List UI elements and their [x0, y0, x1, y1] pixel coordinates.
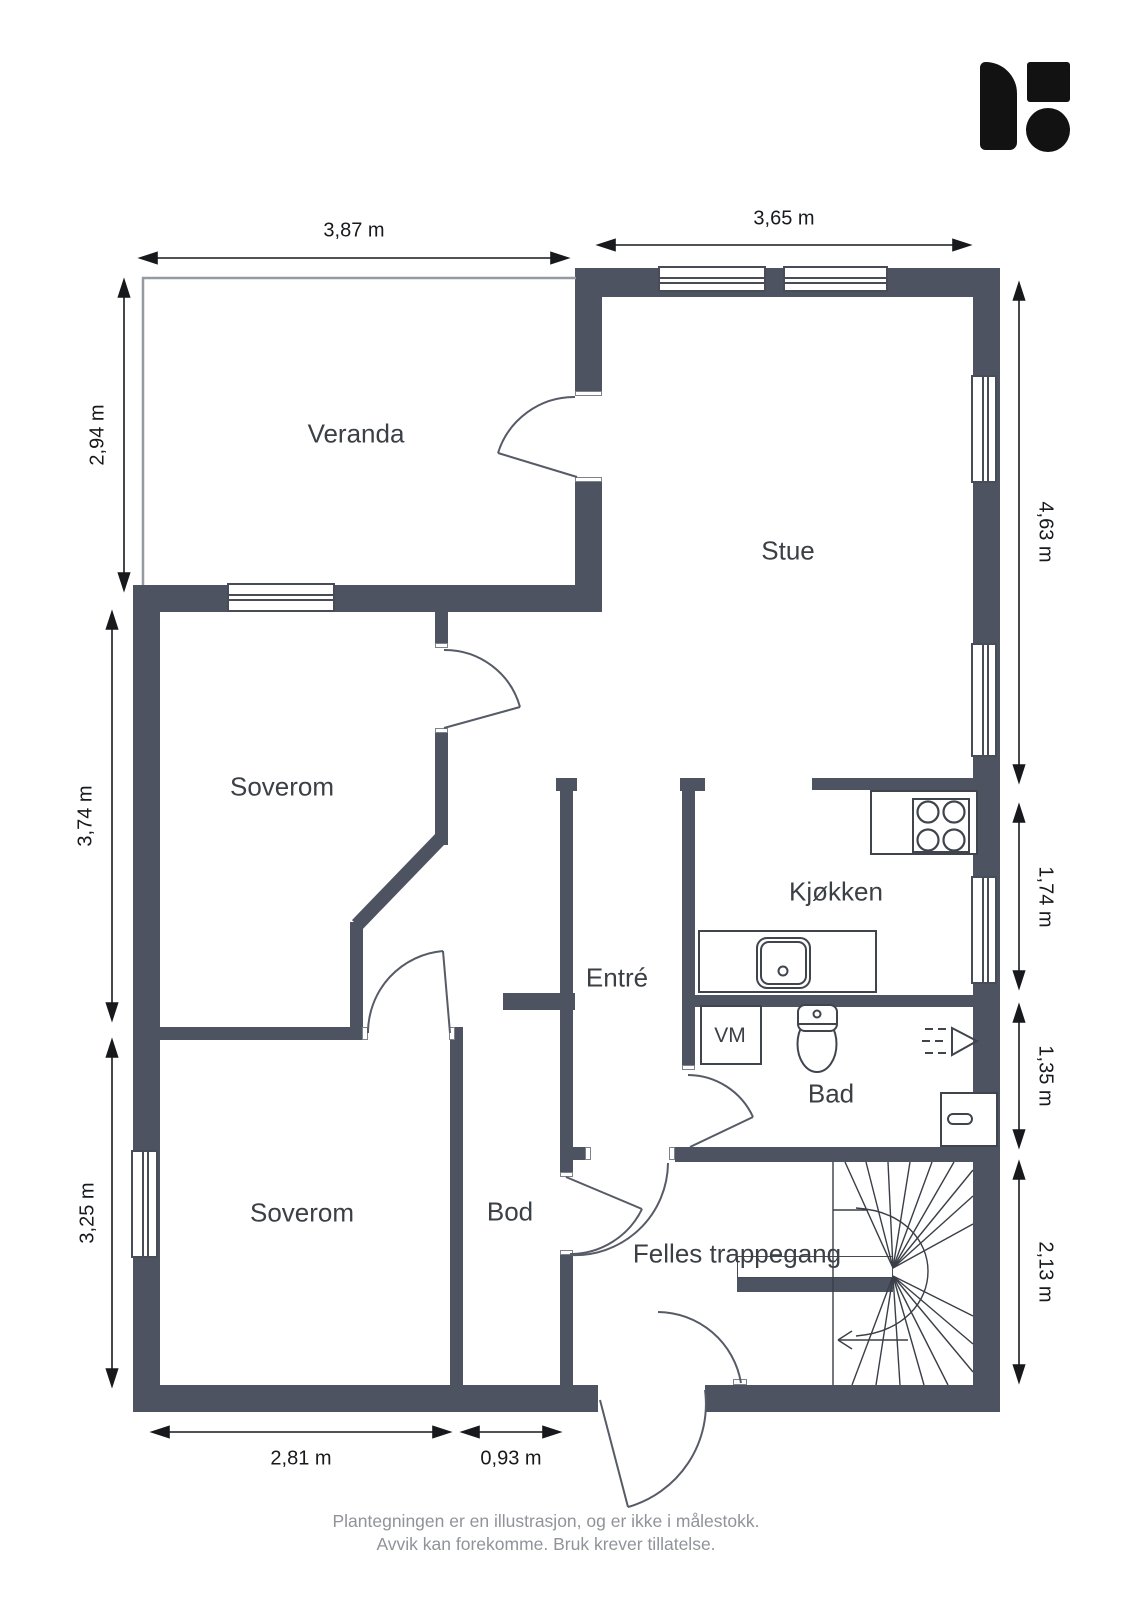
- wall-stue-left-lower: [575, 478, 602, 612]
- wall-entre-right: [682, 778, 695, 1070]
- door-leaf-entre: [690, 1117, 753, 1147]
- shower-icon: [922, 1028, 977, 1055]
- dim-bod-width: 0,93 m: [480, 1448, 541, 1471]
- jamb: [733, 1379, 747, 1385]
- door-arc-entre: [688, 1075, 753, 1117]
- window-soverom1-top: [227, 583, 335, 612]
- wall-exterior-bottom-right: [705, 1385, 1000, 1412]
- jamb: [435, 728, 448, 733]
- jamb: [449, 1027, 455, 1040]
- dim-soverom-upper-height: 3,74 m: [75, 785, 98, 846]
- jamb: [435, 643, 448, 648]
- wall-stue-left-upper: [575, 268, 602, 395]
- room-label-entre: Entré: [586, 963, 648, 994]
- wall-exterior-left: [133, 585, 160, 1412]
- door-arc-soverom1: [444, 650, 520, 707]
- disclaimer-line-1: Plantegningen er en illustrasjon, og er …: [246, 1510, 846, 1533]
- door-leaf-entrance: [600, 1400, 628, 1507]
- sink-counter: [698, 930, 877, 993]
- room-label-kjokken: Kjøkken: [789, 877, 883, 908]
- room-label-soverom-upper: Soverom: [230, 772, 334, 803]
- door-leaf-soverom1: [444, 707, 520, 728]
- window-kjokken-right: [971, 876, 997, 984]
- room-label-stue: Stue: [761, 536, 815, 567]
- door-arc-bod: [570, 1209, 642, 1254]
- jamb: [669, 1147, 675, 1160]
- jamb: [575, 391, 602, 396]
- room-label-trappegang: Felles trappegang: [633, 1239, 841, 1270]
- dim-soverom-lower-width: 2,81 m: [270, 1448, 331, 1471]
- jamb: [575, 477, 602, 482]
- wall-stair-divider: [737, 1278, 893, 1292]
- door-leaf-soverom2: [443, 951, 450, 1033]
- wall-veranda-bottom: [133, 585, 602, 612]
- dim-soverom-lower-height: 3,25 m: [77, 1182, 100, 1243]
- toilet-icon: [798, 1005, 838, 1072]
- door-arc-soverom2: [368, 951, 443, 1033]
- jamb: [585, 1147, 591, 1160]
- dim-veranda-width: 3,87 m: [323, 220, 384, 243]
- room-label-bad: Bad: [808, 1079, 854, 1110]
- dim-trappegang-height: 2,13 m: [1034, 1241, 1057, 1302]
- wall-stub-hall: [503, 993, 575, 1010]
- disclaimer-line-2: Avvik kan forekomme. Bruk krever tillate…: [246, 1533, 846, 1556]
- wall-entre-left-lower: [560, 1255, 573, 1385]
- floorplan-canvas: Veranda Stue Soverom Kjøkken Entré Bad S…: [0, 0, 1131, 1600]
- wall-entre-left-upper: [560, 778, 573, 1177]
- wall-soverom-divider: [133, 1027, 367, 1040]
- disclaimer: Plantegningen er en illustrasjon, og er …: [246, 1510, 846, 1556]
- window-soverom2-left: [131, 1150, 158, 1258]
- dim-stue-height: 4,63 m: [1034, 501, 1057, 562]
- window-stue-top-2: [783, 266, 888, 292]
- wall-soverom1-right-c: [350, 922, 363, 1040]
- jamb: [560, 1172, 573, 1177]
- wall-soverom1-diagonal: [357, 838, 441, 925]
- bad-service-door-handle: [947, 1113, 973, 1125]
- jamb: [362, 1027, 368, 1040]
- wall-entre-cap-left: [556, 778, 577, 791]
- window-stue-right-1: [971, 375, 997, 483]
- appliance-label-vm: VM: [714, 1024, 746, 1048]
- window-stue-right-2: [971, 643, 997, 757]
- room-label-veranda: Veranda: [308, 419, 405, 450]
- dim-veranda-height: 2,94 m: [87, 404, 110, 465]
- wall-entre-cap-right: [680, 778, 705, 791]
- dim-kjokken-height: 1,74 m: [1034, 866, 1057, 927]
- stove-icon: [912, 798, 970, 853]
- dim-bad-height: 1,35 m: [1034, 1045, 1057, 1106]
- brand-logo-bar: [980, 62, 1017, 150]
- door-leaf-veranda: [498, 453, 577, 477]
- wall-kitchen-top: [812, 778, 973, 790]
- wall-bod-left: [450, 1027, 463, 1385]
- wall-bad-bottom: [675, 1147, 973, 1162]
- room-label-bod: Bod: [487, 1197, 533, 1228]
- door-arc-entrance-inner: [658, 1312, 741, 1383]
- room-label-soverom-lower: Soverom: [250, 1198, 354, 1229]
- door-arc-veranda: [498, 397, 575, 453]
- wall-soverom1-right-b: [435, 728, 448, 845]
- jamb: [560, 1250, 573, 1255]
- door-leaf-bod: [566, 1177, 642, 1209]
- brand-logo-square: [1027, 62, 1070, 102]
- brand-logo-circle: [1026, 108, 1070, 152]
- door-arc-entrance: [628, 1390, 706, 1507]
- window-stue-top-1: [658, 266, 766, 292]
- dim-stue-width: 3,65 m: [753, 208, 814, 231]
- wall-exterior-bottom-left: [133, 1385, 598, 1412]
- jamb: [682, 1065, 695, 1070]
